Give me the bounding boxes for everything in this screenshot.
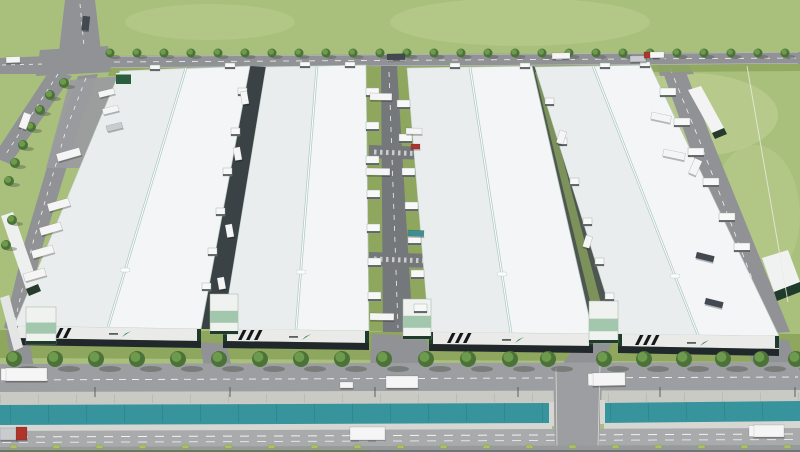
truck-body bbox=[5, 368, 47, 381]
tree-shadow bbox=[345, 366, 367, 372]
truck bbox=[406, 128, 423, 136]
loading-dock-central-east-door bbox=[405, 209, 418, 211]
loading-dock-central-east-door bbox=[414, 311, 427, 313]
bridge-abutment bbox=[600, 400, 605, 424]
tree-shadow bbox=[551, 366, 573, 372]
tree-canopy-highlight bbox=[8, 216, 14, 222]
tree-canopy-highlight bbox=[130, 352, 140, 362]
loading-dock-east-side-door bbox=[703, 185, 719, 187]
streetlight-head bbox=[229, 387, 231, 389]
bush bbox=[397, 445, 404, 449]
warehouse-1-north-canopy bbox=[116, 73, 131, 84]
tree-shadow bbox=[263, 366, 285, 372]
annex-glass-band bbox=[589, 319, 618, 332]
truck-body bbox=[350, 427, 385, 440]
loading-dock-alley-west-door bbox=[208, 254, 217, 256]
truck-body bbox=[366, 168, 390, 175]
tree-canopy-highlight bbox=[781, 49, 787, 55]
loading-dock-central-west-door bbox=[368, 299, 381, 301]
truck bbox=[588, 372, 626, 387]
bush bbox=[483, 445, 490, 449]
annex-base bbox=[403, 336, 431, 339]
grass-light-patch bbox=[390, 0, 650, 46]
loading-dock-north-door bbox=[225, 67, 235, 69]
bush bbox=[268, 445, 275, 449]
tree-canopy-highlight bbox=[349, 49, 355, 55]
loading-dock-central-west-door bbox=[366, 163, 379, 165]
truck-body bbox=[592, 372, 625, 386]
truck-body bbox=[0, 428, 17, 440]
loading-dock-alley-west-door bbox=[231, 134, 240, 136]
tree-canopy-highlight bbox=[376, 49, 382, 55]
tree-canopy-highlight bbox=[484, 49, 490, 55]
tree-shadow bbox=[647, 366, 669, 372]
tree-canopy-highlight bbox=[335, 352, 345, 362]
bush bbox=[526, 445, 533, 449]
truck-body bbox=[340, 382, 353, 388]
tree-canopy-highlight bbox=[322, 49, 328, 55]
roof-vent bbox=[497, 272, 507, 276]
bush bbox=[612, 445, 619, 449]
bush bbox=[10, 445, 17, 449]
tree-canopy-highlight bbox=[430, 49, 436, 55]
loading-dock-north-door bbox=[150, 69, 160, 71]
bush bbox=[96, 445, 103, 449]
truck bbox=[6, 56, 21, 64]
tree-shadow bbox=[181, 366, 203, 372]
annex-glass-band bbox=[26, 323, 56, 334]
tree-canopy-highlight bbox=[295, 49, 301, 55]
truck-body bbox=[408, 230, 424, 237]
loading-dock-central-west-door bbox=[367, 197, 380, 199]
tree-canopy-highlight bbox=[541, 352, 551, 362]
tree-canopy-highlight bbox=[294, 352, 304, 362]
tree-canopy-highlight bbox=[19, 141, 25, 147]
tree-canopy-highlight bbox=[673, 49, 679, 55]
grass-light-patch bbox=[125, 4, 295, 40]
logo-text-mark bbox=[687, 342, 696, 344]
truck bbox=[370, 313, 395, 322]
tree-shadow bbox=[429, 366, 451, 372]
tree-canopy-highlight bbox=[503, 352, 513, 362]
tree-shadow bbox=[607, 366, 629, 372]
truck-cab bbox=[749, 426, 754, 437]
tree-canopy-highlight bbox=[187, 49, 193, 55]
truck-body bbox=[6, 57, 20, 63]
bridge-abutment bbox=[549, 402, 554, 426]
tree-shadow bbox=[687, 366, 709, 372]
truck bbox=[370, 93, 393, 102]
loading-dock-east-side-door bbox=[719, 220, 735, 222]
annex-base bbox=[210, 331, 238, 334]
truck bbox=[366, 168, 391, 177]
loading-dock-alley-west-door bbox=[223, 174, 232, 176]
loading-dock-alley-east-door bbox=[570, 184, 579, 186]
truck bbox=[408, 230, 425, 238]
bush bbox=[139, 445, 146, 449]
tree-canopy-highlight bbox=[46, 91, 52, 97]
tree-canopy-highlight bbox=[171, 352, 181, 362]
loading-dock-east-side-door bbox=[734, 250, 750, 252]
tree-canopy-highlight bbox=[716, 352, 726, 362]
loading-dock-alley-west-door bbox=[216, 214, 225, 216]
truck bbox=[644, 52, 651, 60]
truck bbox=[386, 376, 419, 390]
tree-canopy-highlight bbox=[241, 49, 247, 55]
tree-canopy-highlight bbox=[419, 352, 429, 362]
truck bbox=[1, 368, 48, 383]
truck bbox=[749, 425, 785, 439]
truck bbox=[649, 52, 665, 60]
facade-end-panel bbox=[197, 329, 201, 341]
tree-canopy-highlight bbox=[7, 352, 17, 362]
aerial-render-industrial-park bbox=[0, 0, 800, 452]
loading-dock-north-door bbox=[640, 66, 650, 68]
tree-shadow bbox=[304, 366, 326, 372]
truck bbox=[387, 54, 406, 62]
tree-canopy-highlight bbox=[212, 352, 222, 362]
tree-canopy-highlight bbox=[133, 49, 139, 55]
tree-canopy-highlight bbox=[700, 49, 706, 55]
loading-dock-central-east-door bbox=[402, 175, 415, 177]
tree-canopy-highlight bbox=[727, 49, 733, 55]
tree-canopy-highlight bbox=[160, 49, 166, 55]
tree-canopy-highlight bbox=[538, 49, 544, 55]
tree-canopy-highlight bbox=[36, 106, 42, 112]
annex-base bbox=[26, 341, 56, 344]
tree-canopy-highlight bbox=[60, 79, 66, 85]
loading-dock-east-side-door bbox=[674, 125, 690, 127]
tree-canopy-highlight bbox=[789, 352, 799, 362]
bush bbox=[698, 445, 705, 449]
tree-canopy-highlight bbox=[597, 352, 607, 362]
bush bbox=[741, 445, 748, 449]
annex-base bbox=[589, 340, 618, 343]
tree-shadow bbox=[764, 366, 786, 372]
loading-dock-alley-east-door bbox=[605, 299, 614, 301]
logo-text-mark bbox=[502, 339, 511, 341]
loading-dock-north-door bbox=[600, 67, 610, 69]
truck-body bbox=[644, 52, 650, 58]
loading-dock-north-door bbox=[345, 66, 355, 68]
loading-dock-central-east-door bbox=[408, 243, 421, 245]
tree-shadow bbox=[726, 366, 748, 372]
tree-canopy-highlight bbox=[11, 159, 17, 165]
loading-dock-east-side-door bbox=[688, 155, 704, 157]
loading-dock-central-east-door bbox=[411, 277, 424, 279]
truck-body bbox=[82, 16, 90, 31]
tree-canopy-highlight bbox=[592, 49, 598, 55]
tree-canopy-highlight bbox=[268, 49, 274, 55]
truck-body bbox=[630, 56, 646, 62]
loading-dock-alley-east-door bbox=[583, 224, 592, 226]
tree-canopy-highlight bbox=[2, 241, 8, 247]
loading-dock-north-door bbox=[450, 67, 460, 69]
tree-canopy-highlight bbox=[48, 352, 58, 362]
truck-cab bbox=[1, 369, 6, 381]
tree-canopy-highlight bbox=[253, 352, 263, 362]
tree-canopy-highlight bbox=[5, 177, 11, 183]
streetlight-head bbox=[374, 387, 376, 389]
bush bbox=[311, 445, 318, 449]
north-road-arm bbox=[58, 0, 102, 60]
tree-shadow bbox=[99, 366, 121, 372]
tree-canopy-highlight bbox=[754, 352, 764, 362]
loading-dock-central-east-door bbox=[397, 107, 410, 109]
truck bbox=[552, 53, 571, 61]
streetlight-head bbox=[94, 387, 96, 389]
loading-dock-central-west-door bbox=[368, 265, 381, 267]
truck-body bbox=[411, 144, 420, 149]
logo-text-mark bbox=[109, 333, 118, 335]
truck bbox=[16, 427, 28, 442]
truck-cab bbox=[588, 373, 593, 385]
truck bbox=[350, 427, 386, 442]
loading-dock-central-west-door bbox=[367, 231, 380, 233]
truck-body bbox=[753, 425, 784, 437]
bush bbox=[784, 445, 791, 449]
tree-shadow bbox=[513, 366, 535, 372]
truck-body bbox=[386, 376, 418, 388]
truck-body bbox=[552, 53, 570, 59]
logo-text-mark bbox=[289, 336, 298, 338]
bush bbox=[440, 445, 447, 449]
tree-canopy-highlight bbox=[637, 352, 647, 362]
truck bbox=[340, 382, 354, 390]
streetlight-head bbox=[659, 387, 661, 389]
roof-vent bbox=[296, 270, 306, 274]
canopy-roof-edge bbox=[116, 73, 131, 75]
tree-canopy-highlight bbox=[619, 49, 625, 55]
roof-vent bbox=[120, 268, 130, 272]
truck-body bbox=[649, 52, 664, 58]
roof-vent bbox=[670, 274, 680, 278]
truck bbox=[0, 428, 18, 442]
tree-shadow bbox=[471, 366, 493, 372]
loading-dock-alley-east-door bbox=[545, 104, 554, 106]
bush bbox=[182, 445, 189, 449]
loading-dock-central-west-door bbox=[366, 129, 379, 131]
tree-canopy-highlight bbox=[461, 352, 471, 362]
truck-body bbox=[387, 54, 405, 60]
streetlight-head bbox=[794, 387, 796, 389]
tree-canopy-highlight bbox=[106, 49, 112, 55]
tree-shadow bbox=[222, 366, 244, 372]
streetlight-head bbox=[517, 387, 519, 389]
tree-shadow bbox=[140, 366, 162, 372]
loading-dock-central-east-door bbox=[399, 141, 412, 143]
tree-canopy-highlight bbox=[214, 49, 220, 55]
tree-canopy-highlight bbox=[511, 49, 517, 55]
truck-body bbox=[370, 93, 392, 100]
truck-body bbox=[370, 313, 394, 320]
loading-dock-alley-east-door bbox=[595, 264, 604, 266]
tree-canopy-highlight bbox=[754, 49, 760, 55]
facade-end-panel bbox=[775, 336, 779, 348]
annex-glass-band bbox=[210, 311, 238, 323]
tree-canopy-highlight bbox=[89, 352, 99, 362]
bush bbox=[225, 445, 232, 449]
bush bbox=[569, 445, 576, 449]
loading-dock-east-side-door bbox=[660, 95, 676, 97]
tree-canopy-highlight bbox=[677, 352, 687, 362]
tree-canopy-highlight bbox=[377, 352, 387, 362]
facade-end-panel bbox=[618, 334, 622, 346]
loading-dock-north-door bbox=[300, 66, 310, 68]
annex-glass-band bbox=[403, 316, 431, 328]
tree-shadow bbox=[387, 366, 409, 372]
scene-svg bbox=[0, 0, 800, 452]
bush bbox=[354, 445, 361, 449]
bush bbox=[53, 445, 60, 449]
truck-body bbox=[16, 427, 27, 440]
truck bbox=[411, 144, 421, 151]
tree-shadow bbox=[58, 366, 80, 372]
truck-body bbox=[406, 128, 422, 134]
tree-canopy-highlight bbox=[457, 49, 463, 55]
loading-dock-alley-west-door bbox=[202, 289, 211, 291]
loading-dock-north-door bbox=[520, 67, 530, 69]
facade-end-panel bbox=[365, 331, 369, 343]
bush bbox=[655, 445, 662, 449]
